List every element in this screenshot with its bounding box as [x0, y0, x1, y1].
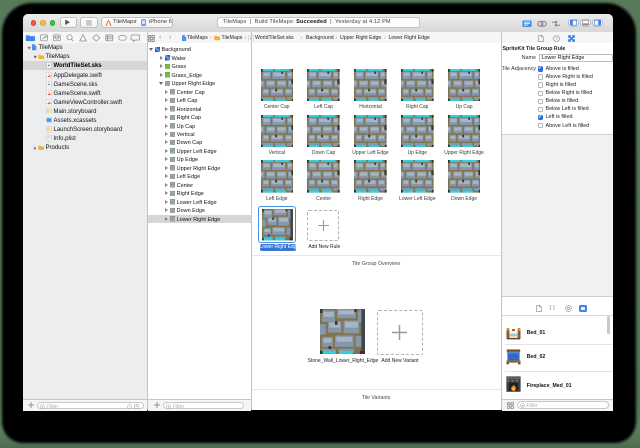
svg-text:?: ?: [555, 36, 558, 41]
